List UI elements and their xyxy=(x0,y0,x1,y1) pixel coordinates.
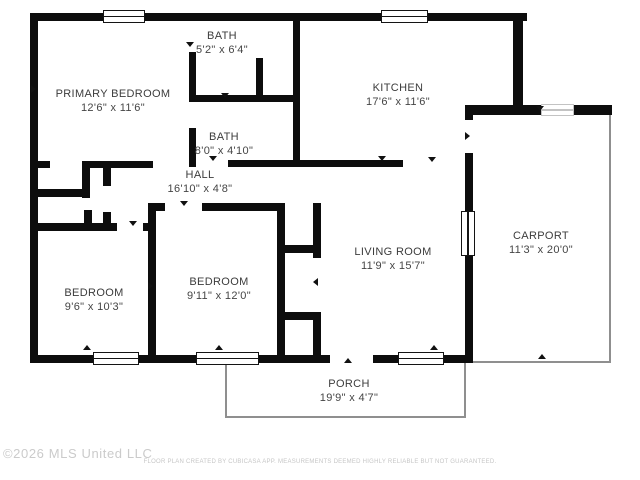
door-marker-icon xyxy=(180,201,188,206)
wall-segment xyxy=(30,13,105,21)
room-name: HALL xyxy=(168,168,233,182)
wall-segment xyxy=(228,160,403,167)
wall-segment xyxy=(38,189,90,197)
disclaimer-text: FLOOR PLAN CREATED BY CUBICASA APP. MEAS… xyxy=(144,459,497,465)
room-name: BATH xyxy=(196,29,248,43)
wall-segment xyxy=(30,355,95,363)
window-mullion xyxy=(94,358,138,359)
wall-segment xyxy=(277,312,319,320)
window-symbol xyxy=(461,211,475,256)
window-symbol xyxy=(398,352,444,365)
room-label-bedroom-middle: BEDROOM9'11" x 12'0" xyxy=(187,275,251,303)
room-label-porch: PORCH19'9" x 4'7" xyxy=(320,377,378,405)
room-name: LIVING ROOM xyxy=(354,245,431,259)
door-marker-icon xyxy=(378,156,386,161)
room-name: KITCHEN xyxy=(366,81,430,95)
wall-segment xyxy=(143,13,383,21)
room-label-hall: HALL16'10" x 4'8" xyxy=(168,168,233,196)
wall-segment xyxy=(30,161,50,168)
room-name: CARPORT xyxy=(509,229,573,243)
door-marker-icon xyxy=(83,345,91,350)
door-marker-icon xyxy=(344,358,352,363)
door-marker-icon xyxy=(148,282,153,290)
wall-segment xyxy=(313,203,321,258)
room-dimensions: 12'6" x 11'6" xyxy=(56,101,171,115)
window-symbol xyxy=(541,104,574,116)
wall-segment xyxy=(465,153,473,212)
wall-segment xyxy=(513,13,523,115)
door-marker-icon xyxy=(313,278,318,286)
room-dimensions: 11'3" x 20'0" xyxy=(509,243,573,257)
door-marker-icon xyxy=(536,106,544,111)
room-dimensions: 17'6" x 11'6" xyxy=(366,95,430,109)
window-mullion xyxy=(542,109,573,110)
wall-segment xyxy=(465,255,473,363)
wall-segment xyxy=(30,13,38,363)
window-symbol xyxy=(103,10,145,23)
wall-segment xyxy=(427,13,527,21)
room-dimensions: 19'9" x 4'7" xyxy=(320,391,378,405)
door-marker-icon xyxy=(465,132,470,140)
room-label-bath-upper: BATH5'2" x 6'4" xyxy=(196,29,248,57)
wall-segment xyxy=(35,223,117,231)
open-area-outline xyxy=(225,416,466,418)
room-name: PORCH xyxy=(320,377,378,391)
window-symbol xyxy=(196,352,259,365)
floorplan-canvas: PRIMARY BEDROOM12'6" x 11'6"BATH5'2" x 6… xyxy=(0,0,640,480)
room-name: BEDROOM xyxy=(187,275,251,289)
room-dimensions: 8'0" x 4'10" xyxy=(195,144,253,158)
wall-segment xyxy=(573,105,612,115)
window-mullion xyxy=(382,16,427,17)
room-label-kitchen: KITCHEN17'6" x 11'6" xyxy=(366,81,430,109)
open-area-outline xyxy=(225,363,227,418)
room-name: BEDROOM xyxy=(64,286,123,300)
wall-segment xyxy=(103,161,111,186)
room-label-living-room: LIVING ROOM11'9" x 15'7" xyxy=(354,245,431,273)
room-dimensions: 9'11" x 12'0" xyxy=(187,289,251,303)
door-marker-icon xyxy=(538,354,546,359)
room-label-primary-bedroom: PRIMARY BEDROOM12'6" x 11'6" xyxy=(56,87,171,115)
window-symbol xyxy=(93,352,139,365)
room-label-bedroom-left: BEDROOM9'6" x 10'3" xyxy=(64,286,123,314)
room-label-bath-lower: BATH8'0" x 4'10" xyxy=(195,130,253,158)
window-symbol xyxy=(381,10,428,23)
window-mullion xyxy=(197,358,258,359)
wall-segment xyxy=(189,52,196,98)
door-marker-icon xyxy=(430,345,438,350)
door-marker-icon xyxy=(186,42,194,47)
room-dimensions: 16'10" x 4'8" xyxy=(168,182,233,196)
room-dimensions: 9'6" x 10'3" xyxy=(64,300,123,314)
door-marker-icon xyxy=(31,85,36,93)
wall-segment xyxy=(373,355,400,363)
wall-segment xyxy=(285,245,313,253)
window-mullion xyxy=(399,358,443,359)
room-dimensions: 5'2" x 6'4" xyxy=(196,43,248,57)
wall-segment xyxy=(189,95,300,102)
door-marker-icon xyxy=(129,221,137,226)
room-name: BATH xyxy=(195,130,253,144)
wall-segment xyxy=(148,203,165,211)
room-label-carport: CARPORT11'3" x 20'0" xyxy=(509,229,573,257)
wall-segment xyxy=(465,105,542,115)
wall-segment xyxy=(277,203,285,355)
window-mullion xyxy=(104,16,144,17)
wall-segment xyxy=(256,58,263,102)
door-marker-icon xyxy=(215,345,223,350)
watermark-copyright: ©2026 MLS United LLC xyxy=(3,446,153,461)
room-name: PRIMARY BEDROOM xyxy=(56,87,171,101)
door-marker-icon xyxy=(428,157,436,162)
door-marker-icon xyxy=(221,93,229,98)
wall-segment xyxy=(202,203,285,211)
wall-segment xyxy=(82,161,153,168)
wall-segment xyxy=(138,355,198,363)
open-area-outline xyxy=(473,361,611,363)
room-dimensions: 11'9" x 15'7" xyxy=(354,259,431,273)
window-mullion xyxy=(467,212,468,255)
wall-segment xyxy=(293,21,300,167)
open-area-outline xyxy=(609,115,611,363)
open-area-outline xyxy=(464,363,466,418)
